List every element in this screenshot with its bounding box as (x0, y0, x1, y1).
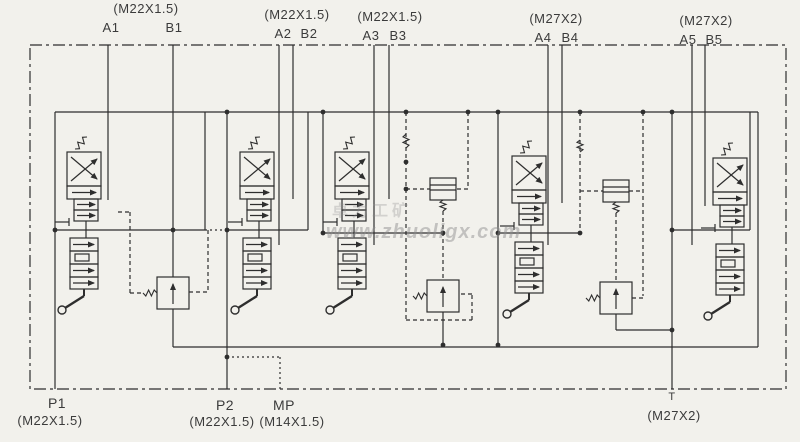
cross-arrow-icon (339, 157, 365, 179)
check-valve-1 (430, 178, 456, 211)
cross-arrow-icon (516, 163, 542, 185)
relief-valve-2 (413, 280, 459, 312)
junction-dot (404, 110, 409, 115)
crossed-position-box (335, 152, 369, 186)
port-a4-label: A4 (535, 31, 552, 45)
junction-dot (321, 110, 326, 115)
lever-knob-icon (704, 312, 712, 320)
check-valve-2 (603, 180, 629, 213)
spool-detent-box (75, 254, 89, 261)
junction-dot (225, 228, 230, 233)
junction-dot (578, 231, 583, 236)
port-t-label: T (668, 391, 675, 403)
spool-box (716, 257, 744, 270)
junction-dot (670, 328, 675, 333)
lever-arm (238, 296, 257, 308)
valve-section-5 (701, 143, 747, 320)
crossed-position-box (512, 156, 546, 190)
junction-dot (404, 187, 409, 192)
junction-dot (441, 231, 446, 236)
junction-dot (578, 110, 583, 115)
lever-arm (333, 296, 352, 308)
valve-spring-icon (343, 137, 355, 149)
check-spring-icon (440, 200, 446, 211)
cross-arrow-icon (244, 157, 270, 179)
port-p2-thread-label: (M22X1.5) (189, 415, 254, 429)
schematic-lines (53, 45, 758, 389)
port-a2-label: A2 (275, 27, 292, 41)
relief-valve-1 (143, 277, 189, 309)
check-spring-icon (613, 202, 619, 213)
port-t-thread-label: (M27X2) (647, 409, 700, 423)
spool-detent-box (248, 254, 262, 261)
valve-spring-icon (248, 137, 260, 149)
port-a5b5-thread-label: (M27X2) (679, 14, 732, 28)
junction-dot (225, 355, 230, 360)
junction-dot (466, 110, 471, 115)
junction-dot (441, 343, 446, 348)
valve-spring-icon (75, 137, 87, 149)
port-p1-label: P1 (48, 396, 66, 411)
port-a1b1-thread-label: (M22X1.5) (113, 2, 178, 16)
spool-box (515, 255, 543, 268)
crossed-position-box (713, 158, 747, 192)
port-b1-label: B1 (166, 21, 183, 35)
spool-detent-box (721, 260, 735, 267)
valve-section-2 (228, 137, 274, 314)
spool-detent-box (343, 254, 357, 261)
crossed-position-box (67, 152, 101, 186)
spool-box (243, 251, 271, 264)
spool-detent-box (520, 258, 534, 265)
valve-spring-icon (721, 143, 733, 155)
lever-knob-icon (503, 310, 511, 318)
relief-valve-3 (586, 282, 632, 314)
lever-arm (65, 296, 84, 308)
lever-arm (711, 302, 730, 314)
junction-dot (171, 228, 176, 233)
junction-dot (404, 160, 409, 165)
port-b2-label: B2 (301, 27, 318, 41)
spool-box (338, 251, 366, 264)
cross-arrow-icon (244, 159, 270, 181)
relief-spring-icon (586, 295, 600, 301)
port-a3-label: A3 (363, 29, 380, 43)
relief-spring-icon (413, 293, 427, 299)
port-a2b2-thread-label: (M22X1.5) (264, 8, 329, 22)
lever-arm (510, 300, 529, 312)
lever-knob-icon (231, 306, 239, 314)
hydraulic-schematic (0, 0, 800, 442)
relief-spring-icon (143, 290, 157, 296)
schematic-canvas: (M22X1.5) A1 B1 (M22X1.5) A2 B2 (M22X1.5… (0, 0, 800, 442)
junction-dot (670, 228, 675, 233)
valve-spring-icon (520, 141, 532, 153)
lever-knob-icon (58, 306, 66, 314)
valve-section-4 (500, 141, 546, 318)
valve-section-1 (55, 137, 101, 314)
port-b5-label: B5 (706, 33, 723, 47)
spool-box (70, 251, 98, 264)
port-a4b4-thread-label: (M27X2) (529, 12, 582, 26)
port-b4-label: B4 (562, 31, 579, 45)
port-mp-thread-label: (M14X1.5) (259, 415, 324, 429)
valve-section-3 (323, 137, 369, 314)
port-mp-label: MP (273, 398, 295, 413)
junction-dot (641, 110, 646, 115)
junction-dot (225, 110, 230, 115)
port-p1-thread-label: (M22X1.5) (17, 414, 82, 428)
junction-dot (496, 343, 501, 348)
junction-dot (321, 231, 326, 236)
junction-dot (496, 110, 501, 115)
junction-dot (496, 231, 501, 236)
cross-arrow-icon (339, 159, 365, 181)
check-valve-box (430, 178, 456, 200)
cross-arrow-icon (71, 159, 97, 181)
cross-arrow-icon (717, 165, 743, 187)
port-b3-label: B3 (390, 29, 407, 43)
cross-arrow-icon (71, 157, 97, 179)
port-a1-label: A1 (103, 21, 120, 35)
cross-arrow-icon (717, 163, 743, 185)
junction-dot (53, 228, 58, 233)
junction-dot (670, 110, 675, 115)
cross-arrow-icon (516, 161, 542, 183)
lever-knob-icon (326, 306, 334, 314)
crossed-position-box (240, 152, 274, 186)
check-valve-box (603, 180, 629, 202)
port-a5-label: A5 (680, 33, 697, 47)
port-a3b3-thread-label: (M22X1.5) (357, 10, 422, 24)
port-p2-label: P2 (216, 398, 234, 413)
